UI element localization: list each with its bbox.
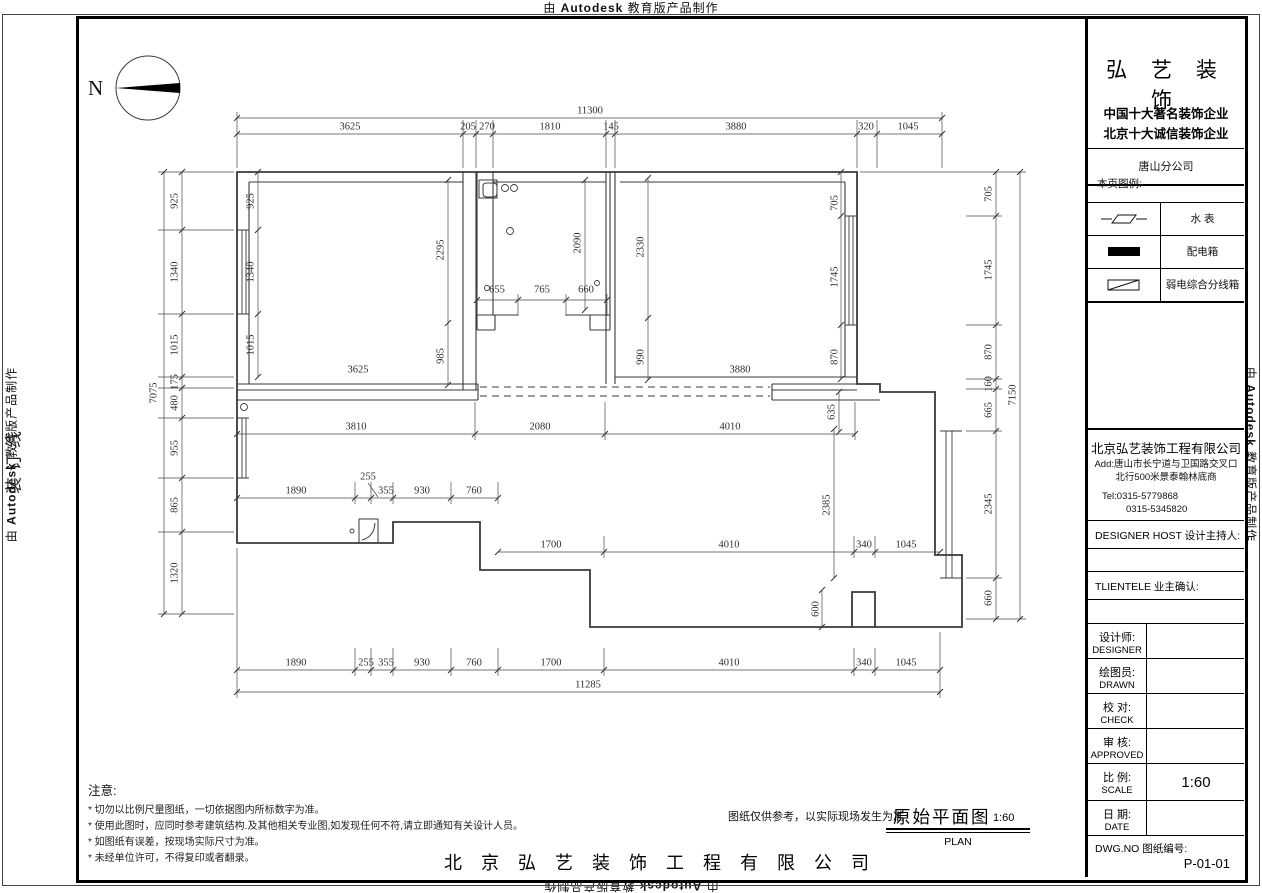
dimension-label: 660 (578, 285, 594, 296)
dimension-label: 205 (460, 122, 476, 133)
dwg-no-label: DWG.NO 图纸编号: (1095, 841, 1187, 856)
dimension-ticks (161, 115, 1023, 695)
dimension-label: 705 (984, 186, 995, 202)
dimension-label: 340 (856, 658, 872, 669)
dimension-label: 705 (830, 195, 841, 211)
dimension-label: 600 (811, 601, 822, 617)
dimension-label: 870 (830, 349, 841, 365)
dimension-label: 1745 (830, 267, 841, 288)
dimension-label: 175 (170, 374, 181, 390)
dimension-label: 985 (436, 348, 447, 364)
dimension-label: 990 (636, 349, 647, 365)
note-item: * 切勿以比例尺量图纸，一切依据图内所标数字为准。 (88, 801, 325, 816)
dimension-label: 4010 (719, 540, 740, 551)
distribution-box-symbol (1088, 235, 1160, 268)
designer-host-label: DESIGNER HOST 设计主持人: (1095, 528, 1240, 543)
wall-inner-lines (237, 172, 880, 400)
dimension-label: 4010 (720, 422, 741, 433)
dimension-label: 865 (170, 497, 181, 513)
dimension-label: 1045 (898, 122, 919, 133)
dimension-label: 665 (984, 402, 995, 418)
company-name: 北京弘艺装饰工程有限公司 (1088, 438, 1244, 457)
dimension-label: 145 (603, 122, 619, 133)
dimension-label: 1340 (246, 262, 257, 283)
dimension-label: 2080 (530, 422, 551, 433)
dimension-label: 925 (246, 193, 257, 209)
dimension-label: 2385 (822, 495, 833, 516)
note-item: * 未经单位许可，不得复印或者翻录。 (88, 849, 255, 864)
footer-company-name: 北 京 弘 艺 装 饰 工 程 有 限 公 司 (300, 849, 1020, 875)
title-block: 弘 艺 装 饰 中国十大著名装饰企业 北京十大诚信装饰企业 唐山分公司 本页图例… (1085, 16, 1244, 877)
dimension-label: 930 (414, 486, 430, 497)
row-date: 日 期:DATE (1088, 806, 1146, 833)
row-approved: 审 核:APPROVED (1088, 734, 1146, 761)
dimension-label: 160 (984, 376, 995, 392)
branch-name: 唐山分公司 (1088, 158, 1244, 174)
dimension-label: 480 (170, 395, 181, 411)
fixture-circles (241, 185, 600, 534)
dimension-label: 1015 (170, 335, 181, 356)
dimension-label: 11300 (577, 106, 603, 117)
dimension-label: 355 (378, 486, 394, 497)
title-underline-2 (886, 832, 1030, 833)
title-underline (886, 828, 1030, 830)
weak-current-box-symbol (1088, 268, 1160, 301)
dimension-label: 255 (358, 658, 374, 669)
north-label: N (88, 76, 103, 101)
row-scale: 比 例:SCALE (1088, 769, 1146, 796)
dimension-label: 7150 (1008, 385, 1019, 406)
legend-title: 本页图例: (1097, 176, 1142, 191)
dimension-label: 655 (489, 285, 505, 296)
notes-title: 注意: (88, 780, 116, 799)
dimension-label: 2345 (984, 494, 995, 515)
note-item: * 如图纸有误差，按现场实际尺寸为准。 (88, 833, 265, 848)
dimension-label: 340 (856, 540, 872, 551)
dimension-label: 320 (858, 122, 874, 133)
clientele-label: TLIENTELE 业主确认: (1095, 579, 1199, 594)
dimension-label: 255 (360, 472, 376, 483)
dimension-label: 2090 (573, 233, 584, 254)
company-phone: Tel:0315-5779868 0315-5345820 (1102, 490, 1187, 516)
dimension-label: 4010 (719, 658, 740, 669)
drawing-title: 原始平面图 (893, 804, 991, 829)
dimension-label: 925 (170, 193, 181, 209)
disclaimer-text: 图纸仅供参考，以实际现场发生为准 (728, 808, 904, 824)
dimension-label: 3625 (340, 122, 361, 133)
dimension-label: 930 (414, 658, 430, 669)
floor-plan-canvas (0, 0, 1262, 893)
dimension-label: 1810 (540, 122, 561, 133)
row-drawn: 绘图员:DRAWN (1088, 664, 1146, 691)
dimension-label: 955 (170, 440, 181, 456)
dimension-label: 635 (827, 404, 838, 420)
dimension-label: 1320 (170, 563, 181, 584)
dimension-label: 2330 (636, 237, 647, 258)
row-designer: 设计师:DESIGNER (1088, 629, 1146, 656)
dimension-label: 1340 (170, 262, 181, 283)
company-address: Add:唐山市长宁道与卫国路交叉口 北行500米景泰翰林底商 (1088, 458, 1244, 484)
legend-row-water-meter: 水 表 (1088, 202, 1244, 235)
dimension-label: 3880 (726, 122, 747, 133)
note-item: * 使用此图时，应同时参考建筑结构.及其他相关专业图,如发现任何不符,请立即通知… (88, 817, 523, 832)
legend-row-weak-current-box: 弱电综合分线箱 (1088, 268, 1244, 301)
dimension-label: 1890 (286, 486, 307, 497)
dwg-no-value: P-01-01 (1184, 856, 1230, 871)
dimension-label: 1700 (541, 540, 562, 551)
dimension-label: 765 (534, 285, 550, 296)
dimension-label: 3880 (730, 365, 751, 376)
legend-row-distribution-box: 配电箱 (1088, 235, 1244, 268)
dimension-label: 660 (984, 590, 995, 606)
dimension-label: 1045 (896, 540, 917, 551)
dimension-label: 1745 (984, 260, 995, 281)
dimension-label: 7075 (149, 383, 160, 404)
scale-value: 1:60 (1146, 774, 1246, 791)
kitchen-sink-icon (479, 180, 497, 198)
brand-slogans: 中国十大著名装饰企业 北京十大诚信装饰企业 (1088, 104, 1244, 144)
dimension-label: 1045 (896, 658, 917, 669)
dimension-label: 3810 (346, 422, 367, 433)
dimension-label: 355 (378, 658, 394, 669)
drawing-title-scale: 1:60 (993, 812, 1014, 824)
drawing-subtitle: PLAN (888, 836, 1028, 848)
dimension-label: 2295 (436, 240, 447, 261)
dimension-label: 760 (466, 658, 482, 669)
row-check: 校 对:CHECK (1088, 699, 1146, 726)
dashed-opening (480, 387, 770, 396)
dimension-label: 1890 (286, 658, 307, 669)
dimension-label: 760 (466, 486, 482, 497)
dimension-label: 270 (479, 122, 495, 133)
north-arrow-icon (116, 56, 180, 120)
dimension-label: 1700 (541, 658, 562, 669)
dimension-label: 3625 (348, 365, 369, 376)
window-glyphs (237, 216, 962, 578)
drawing-sheet: 由 Autodesk 教育版产品制作 由 Autodesk 教育版产品制作 由 … (0, 0, 1262, 893)
bath-fixture-icon (359, 519, 378, 543)
water-meter-symbol (1088, 202, 1160, 235)
dimension-label: 1015 (246, 335, 257, 356)
dimension-label: 870 (984, 344, 995, 360)
dimension-label: 11285 (575, 680, 601, 691)
dimension-lines (158, 112, 1026, 698)
